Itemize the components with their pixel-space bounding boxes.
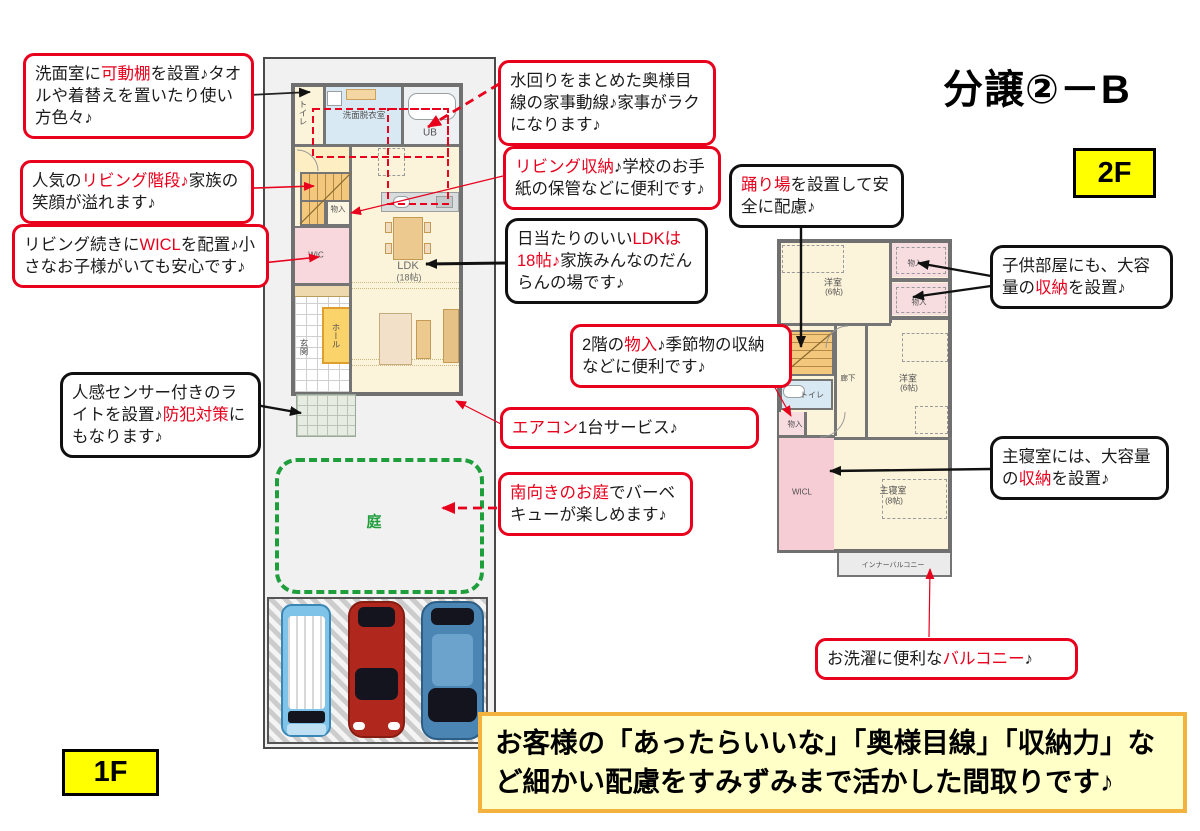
room-label-entrance: 玄関 <box>298 339 310 356</box>
callout-text-segment: 可動棚 <box>101 65 151 83</box>
room-label-hall: ホール <box>330 323 342 349</box>
callout-housework-line: 水回りをまとめた奥様目線の家事動線♪家事がラクになります♪ <box>498 60 716 146</box>
callout-text-segment: お洗濯に便利な <box>827 650 943 668</box>
room-label-inner-balcony: インナーバルコニー <box>862 560 925 570</box>
callout-text-segment: 踊り場 <box>741 176 791 194</box>
wall <box>892 316 948 320</box>
chair <box>424 222 431 233</box>
callout-text-segment: 物入 <box>624 336 657 354</box>
bathtub <box>408 93 456 120</box>
callout-balcony: お洗濯に便利なバルコニー♪ <box>815 638 1078 680</box>
room-label-wic: WIC <box>308 251 324 260</box>
callout-2f-storage: 2階の物入♪季節物の収納などに便利です♪ <box>570 324 792 388</box>
room-label-room1-size: (6帖) <box>825 287 843 298</box>
callout-master-storage: 主寝室には、大容量の収納を設置♪ <box>990 436 1169 500</box>
wall <box>865 326 868 437</box>
callout-living-storage: リビング収納♪学校のお手紙の保管などに便利です♪ <box>503 146 721 210</box>
room-label-storage-1f: 物入 <box>331 204 346 215</box>
floor-tag-1f: 1F <box>62 749 159 796</box>
sofa <box>379 313 412 365</box>
car-red-windshield <box>355 668 398 700</box>
callout-south-garden: 南向きのお庭でバーベキューが楽しめます♪ <box>498 472 693 536</box>
callout-text-segment: 南向きのお庭 <box>510 484 609 502</box>
room-label-ub: UB <box>423 128 437 139</box>
wall <box>892 278 948 282</box>
entrance-step <box>295 286 349 297</box>
callout-movable-shelf: 洗面室に可動棚を設置♪タオルや着替えを置いたり使い方色々♪ <box>23 53 254 139</box>
room-label-toilet-1f: トイレ <box>297 100 309 126</box>
wall <box>834 326 837 436</box>
washing-machine <box>327 91 342 106</box>
kitchen-stove <box>436 196 453 208</box>
callout-text-segment: バルコニー <box>943 650 1025 668</box>
callout-text-segment: 防犯対策 <box>163 406 229 424</box>
room-label-ldk-size: (18帖) <box>396 271 421 284</box>
car-red-headlight <box>388 722 400 730</box>
stairs-1f <box>300 172 351 202</box>
stair-hall <box>295 147 351 172</box>
floor-dotline <box>352 288 459 289</box>
room-label-closet2: 物入 <box>912 297 927 308</box>
callout-ldk-18: 日当たりのいいLDKは18帖♪家族みんなのだんらんの場です♪ <box>505 218 708 304</box>
garden-label: 庭 <box>366 511 381 532</box>
car-van-hood <box>287 724 326 735</box>
chair <box>385 243 392 254</box>
room-label-corridor: 廊下 <box>841 373 856 384</box>
callout-sensor-light: 人感センサー付きのライトを設置♪防犯対策にもなります♪ <box>60 372 261 458</box>
callout-living-stairs: 人気のリビング階段♪家族の笑顔が溢れます♪ <box>20 160 254 224</box>
callout-text-segment: 水回りをまとめた奥様目線の家事動線♪家事がラクになります♪ <box>510 72 700 134</box>
room-label-master-size: (8帖) <box>885 496 903 507</box>
car-blue-roof <box>432 634 473 686</box>
coffee-table <box>416 320 431 359</box>
callout-text-segment: 人気の <box>32 172 82 190</box>
wall <box>295 226 351 228</box>
callout-text-segment: を設置♪ <box>1052 470 1110 488</box>
flyer-page: 庭 トイレ 洗面脱衣室 UB 物入 WIC LDK (18帖) ホール 玄関 <box>0 0 1200 831</box>
callout-text-segment: 日当たりのいい <box>517 230 633 248</box>
wall <box>295 144 459 147</box>
wall <box>889 243 892 323</box>
callout-wicl: リビング続きにWICLを配置♪小さなお子様がいても安心です♪ <box>12 224 269 288</box>
closet-dashed <box>902 333 948 362</box>
chair <box>385 222 392 233</box>
wall <box>349 147 352 393</box>
callout-text-segment: リビング階段♪ <box>82 172 189 190</box>
room-label-storage-2f: 物入 <box>788 419 803 430</box>
callout-text-segment: 収納 <box>1035 279 1068 297</box>
kitchen-sink <box>393 196 410 208</box>
floor-dotline <box>352 365 459 366</box>
callout-aircon-service: エアコン1台サービス♪ <box>500 407 759 449</box>
callout-text-segment: WICL <box>140 236 181 254</box>
room-label-toilet-2f: トイレ <box>800 390 824 401</box>
dining-table <box>393 217 423 260</box>
callout-text-segment: ♪ <box>1025 650 1033 668</box>
vanity-cabinet <box>346 89 376 100</box>
wall <box>834 437 952 440</box>
wall <box>779 435 835 438</box>
callout-text-segment: リビング収納 <box>515 158 614 176</box>
car-van-roof <box>288 616 325 709</box>
callout-text-segment: 2階の <box>582 336 624 354</box>
callout-kids-storage: 子供部屋にも、大容量の収納を設置♪ <box>990 245 1173 309</box>
closet-dashed <box>782 245 844 273</box>
bottom-banner: お客様の「あったらいいな」「奥様目線」「収納力」など細かい配慮をすみずみまで活か… <box>478 712 1187 813</box>
stairs-1f-lower <box>300 200 326 226</box>
car-blue-windshield <box>428 688 477 722</box>
tv-board <box>443 309 459 363</box>
callout-text-segment: 洗面室に <box>35 65 101 83</box>
room-label-wicl: WICL <box>792 488 812 497</box>
callout-text-segment: エアコン <box>512 419 578 437</box>
car-red-headlight <box>353 722 365 730</box>
page-title: 分譲②－B <box>943 57 1131 115</box>
car-van-windshield <box>288 711 325 723</box>
wall <box>295 283 351 286</box>
closet-dashed <box>915 406 948 434</box>
chair <box>424 243 431 254</box>
callout-text-segment: 収納 <box>1019 470 1052 488</box>
callout-text-segment: を設置♪ <box>1068 279 1126 297</box>
callout-stair-landing: 踊り場を設置して安全に配慮♪ <box>729 164 904 228</box>
floor-tag-2f: 2F <box>1073 148 1156 198</box>
room-label-room2-size: (6帖) <box>900 383 918 394</box>
car-red-rear-window <box>358 607 395 627</box>
wall <box>401 87 404 147</box>
room-label-washroom: 洗面脱衣室 <box>343 109 386 121</box>
room-label-closet1: 物入 <box>908 258 923 269</box>
callout-text-segment: 1台サービス♪ <box>578 419 678 437</box>
pantry-dashed <box>378 148 405 176</box>
callout-text-segment: リビング続きに <box>24 236 140 254</box>
porch <box>296 394 356 437</box>
wall <box>323 87 326 147</box>
car-blue-rear-window <box>431 608 474 625</box>
